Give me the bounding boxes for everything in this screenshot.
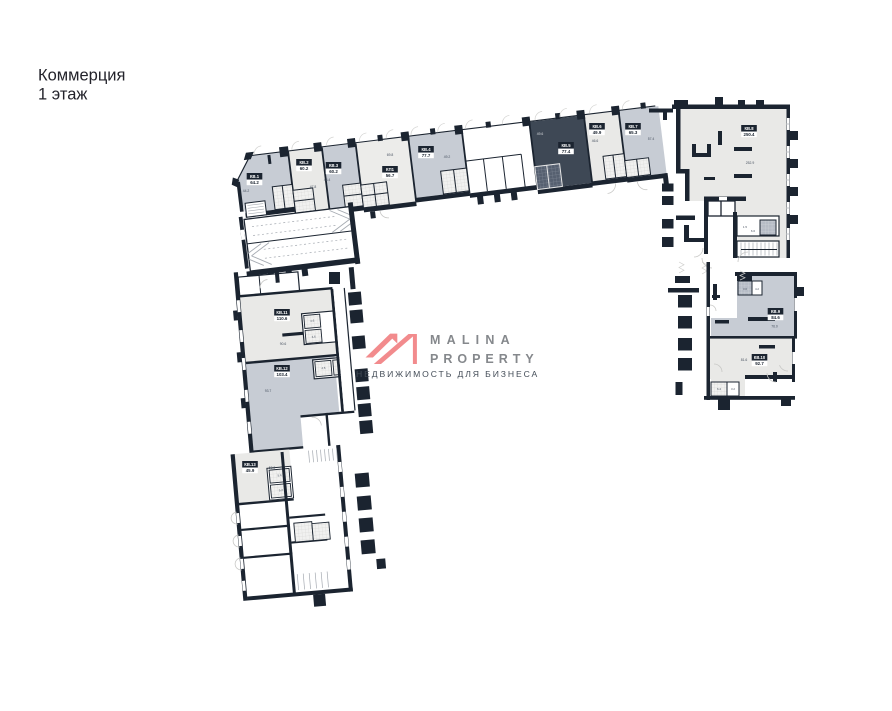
svg-text:50.0: 50.0: [269, 466, 276, 470]
svg-text:6.6: 6.6: [751, 229, 756, 233]
svg-text:65.3: 65.3: [629, 130, 638, 135]
svg-text:60.2: 60.2: [329, 169, 338, 174]
svg-text:64.2: 64.2: [250, 180, 259, 185]
svg-text:КВ.12: КВ.12: [276, 366, 288, 371]
svg-text:69.8: 69.8: [387, 153, 394, 157]
svg-text:3.0: 3.0: [743, 287, 747, 291]
svg-text:4.6: 4.6: [310, 319, 315, 323]
svg-text:КВ.6: КВ.6: [592, 124, 602, 129]
svg-text:КВ.1: КВ.1: [250, 174, 260, 179]
svg-text:90.6: 90.6: [280, 342, 287, 346]
svg-text:Коммерция: Коммерция: [38, 67, 125, 85]
svg-text:КВ.13: КВ.13: [244, 462, 256, 467]
svg-text:КВ.3: КВ.3: [329, 163, 339, 168]
svg-text:3.6: 3.6: [311, 335, 316, 339]
svg-text:MALINA: MALINA: [430, 333, 516, 347]
svg-text:250.4: 250.4: [744, 132, 756, 137]
svg-text:84.6: 84.6: [771, 315, 780, 320]
svg-text:93.7: 93.7: [265, 389, 272, 393]
svg-text:103.4: 103.4: [277, 372, 289, 377]
svg-text:НЕДВИЖИМОСТЬ ДЛЯ БИЗНЕСА: НЕДВИЖИМОСТЬ ДЛЯ БИЗНЕСА: [356, 369, 539, 379]
svg-text:45.9: 45.9: [246, 468, 255, 473]
svg-text:49.6: 49.6: [537, 132, 544, 136]
svg-text:КВ.9: КВ.9: [771, 309, 781, 314]
svg-text:77.4: 77.4: [562, 149, 571, 154]
svg-text:КВ.5: КВ.5: [561, 143, 571, 148]
svg-text:46.6: 46.6: [592, 139, 599, 143]
svg-text:КВ.10: КВ.10: [754, 355, 766, 360]
svg-text:47.8: 47.8: [310, 185, 317, 189]
svg-text:60.2: 60.2: [300, 166, 309, 171]
svg-text:5.2: 5.2: [279, 488, 284, 492]
svg-text:КВ.2: КВ.2: [299, 160, 309, 165]
svg-text:КВ.11: КВ.11: [276, 310, 288, 315]
svg-text:43.4: 43.4: [324, 178, 331, 182]
svg-text:4.2: 4.2: [755, 287, 759, 291]
svg-text:110.6: 110.6: [277, 316, 288, 321]
svg-text:6.4: 6.4: [717, 387, 721, 391]
svg-text:56.7: 56.7: [386, 173, 395, 178]
svg-text:4.6: 4.6: [321, 366, 326, 370]
svg-text:57.4: 57.4: [648, 137, 655, 141]
svg-text:КП1: КП1: [386, 167, 395, 172]
svg-text:44.2: 44.2: [243, 189, 250, 193]
svg-text:1.5: 1.5: [743, 225, 748, 229]
svg-text:77.7: 77.7: [422, 153, 431, 158]
svg-text:PROPERTY: PROPERTY: [430, 352, 539, 366]
svg-text:3.2: 3.2: [731, 387, 735, 391]
svg-text:76.0: 76.0: [771, 325, 778, 329]
svg-text:81.6: 81.6: [741, 358, 748, 362]
svg-text:49.2: 49.2: [444, 155, 451, 159]
svg-text:49.9: 49.9: [593, 130, 602, 135]
svg-text:1 этаж: 1 этаж: [38, 86, 87, 104]
svg-text:КВ.7: КВ.7: [628, 124, 638, 129]
svg-text:252.9: 252.9: [746, 161, 755, 165]
svg-text:5.4: 5.4: [277, 473, 282, 477]
svg-text:КВ.8: КВ.8: [744, 126, 754, 131]
svg-text:92.7: 92.7: [755, 361, 764, 366]
svg-text:КВ.4: КВ.4: [421, 147, 431, 152]
